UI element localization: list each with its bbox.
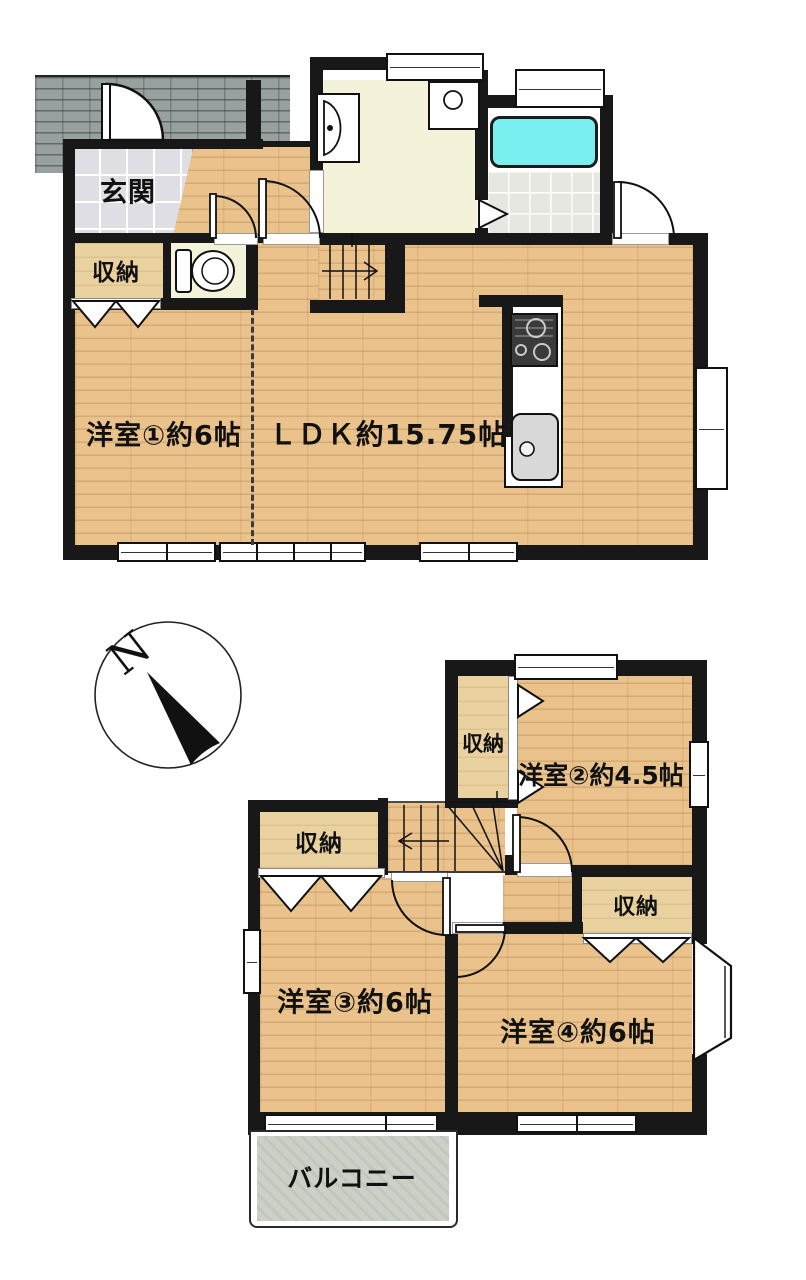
wall-segment bbox=[248, 800, 380, 812]
washroom-sliding-door bbox=[309, 170, 324, 233]
wall-segment bbox=[479, 295, 563, 307]
wall-segment bbox=[246, 80, 261, 142]
window bbox=[695, 367, 728, 490]
window bbox=[689, 741, 709, 808]
stairs2-floor bbox=[388, 803, 505, 873]
hallway-floor bbox=[168, 147, 318, 236]
window bbox=[515, 69, 605, 108]
washroom-floor bbox=[322, 80, 477, 236]
compass-north-label: N bbox=[99, 621, 162, 686]
toilet-door-threshold bbox=[214, 233, 258, 245]
compass-needle bbox=[147, 672, 220, 765]
room3-door-threshold bbox=[391, 871, 448, 882]
toilet-floor bbox=[170, 243, 248, 300]
storage1-label: 収納 bbox=[92, 253, 140, 287]
window-mullion bbox=[576, 1115, 578, 1132]
room2-door-threshold bbox=[517, 863, 572, 877]
room2-label: 洋室②約4.5帖 bbox=[518, 756, 683, 792]
wall-segment bbox=[63, 139, 75, 560]
wall-segment bbox=[63, 139, 263, 149]
wall-segment bbox=[310, 233, 612, 245]
wall-segment bbox=[505, 855, 517, 875]
room-partition-dashed bbox=[251, 309, 254, 545]
wall-segment bbox=[163, 243, 171, 300]
hall2-nook-floor bbox=[503, 875, 572, 922]
window-mullion bbox=[256, 543, 258, 561]
window-mullion bbox=[468, 543, 470, 561]
room4-label: 洋室④約6帖 bbox=[500, 1011, 656, 1050]
room4-door-threshold bbox=[452, 922, 503, 934]
window-mullion bbox=[166, 543, 168, 561]
wall-segment bbox=[572, 865, 692, 877]
back-door-arc bbox=[618, 182, 674, 238]
storage-east-label: 収納 bbox=[613, 889, 659, 921]
wall-segment bbox=[445, 660, 458, 808]
wall-segment bbox=[503, 922, 583, 934]
back-door-threshold bbox=[612, 233, 669, 245]
wall-segment bbox=[310, 57, 323, 170]
storage-west-label: 収納 bbox=[295, 824, 343, 858]
wall-segment bbox=[445, 934, 458, 1135]
bathroom-tile-floor bbox=[487, 171, 601, 235]
bathtub bbox=[490, 116, 598, 168]
window bbox=[386, 53, 484, 81]
storage-north-label: 収納 bbox=[462, 728, 504, 758]
closet-door-track bbox=[258, 868, 385, 878]
window bbox=[514, 654, 618, 680]
entrance-label: 玄関 bbox=[100, 171, 156, 210]
window-mullion bbox=[293, 543, 295, 561]
ldk-label: ＬＤＫ約15.75帖 bbox=[269, 413, 508, 453]
room3-label: 洋室③約6帖 bbox=[277, 981, 433, 1020]
closet-door-track bbox=[583, 933, 692, 944]
closet-door-track bbox=[71, 298, 161, 309]
wall-segment bbox=[692, 660, 707, 1135]
wall-segment bbox=[600, 95, 613, 235]
balcony-label: バルコニー bbox=[287, 1159, 417, 1195]
window bbox=[243, 929, 261, 994]
closet-door-track bbox=[508, 676, 518, 800]
back-door-leaf bbox=[614, 182, 621, 238]
stairs1-floor bbox=[318, 243, 385, 303]
wall-segment bbox=[475, 70, 488, 200]
window-mullion bbox=[330, 543, 332, 561]
hall-door-threshold bbox=[263, 233, 320, 245]
floorplan-canvas: 玄関 収納 洋室①約6帖 ＬＤＫ約15.75帖 収納 洋室②約4.5帖 収納 収… bbox=[0, 0, 806, 1280]
wall-segment bbox=[310, 300, 405, 313]
room1-label: 洋室①約6帖 bbox=[86, 414, 242, 453]
wall-segment bbox=[246, 243, 258, 300]
